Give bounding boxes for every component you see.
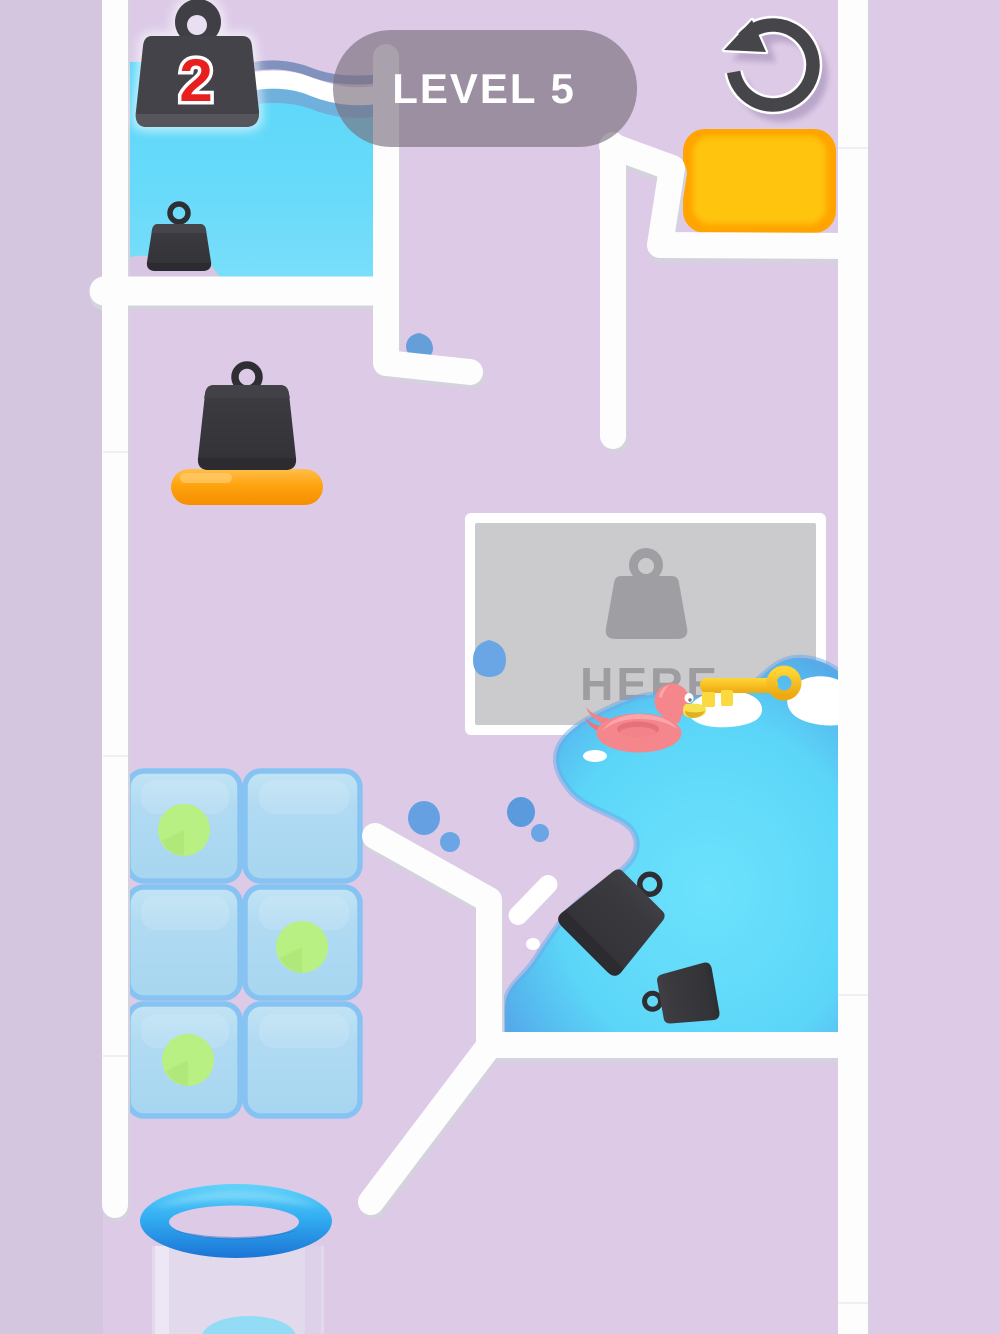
svg-text:LEVEL 5: LEVEL 5	[392, 65, 576, 112]
svg-text:2: 2	[179, 47, 212, 114]
